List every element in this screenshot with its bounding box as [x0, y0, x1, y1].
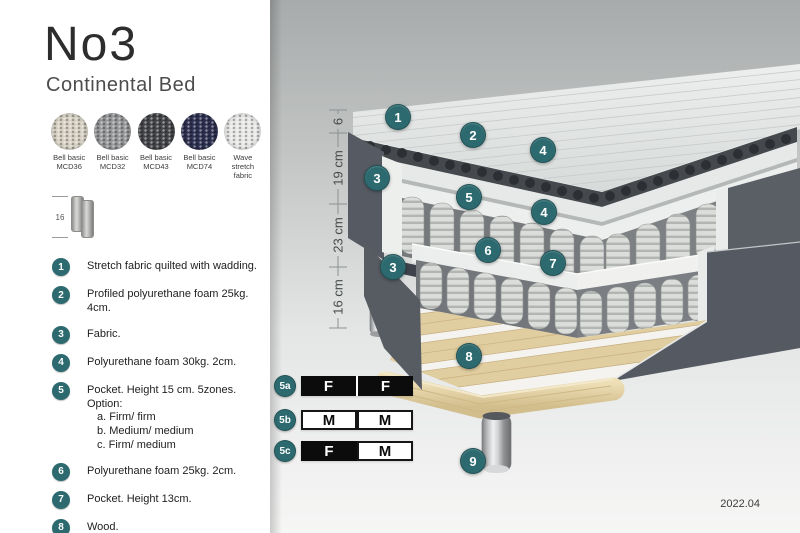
fabric-swatch-circle: [94, 113, 131, 150]
fabric-swatch-circle: [138, 113, 175, 150]
fabric-swatch-label: Bell basicMCD36: [53, 153, 85, 171]
legend-number-badge: 5: [52, 382, 70, 400]
legend-item: 5 Pocket. Height 15 cm. 5zones. Option: …: [52, 382, 270, 453]
legend-number-badge: 7: [52, 491, 70, 509]
callout-badge: 4: [530, 137, 556, 163]
firmness-bar: F M: [301, 441, 413, 461]
firmness-row-badge: 5a: [274, 375, 296, 397]
callout-badge: 3: [364, 165, 390, 191]
firmness-row: 5a F F: [274, 375, 413, 397]
info-panel: No3 Continental Bed Bell basicMCD36 Bell…: [0, 0, 270, 533]
fabric-swatch: Bell basicMCD32: [93, 113, 131, 180]
callout-badge: 6: [475, 237, 501, 263]
callout-badge: 8: [456, 343, 482, 369]
legend: 1 Stretch fabric quilted with wadding. 2…: [52, 258, 270, 533]
legend-text: Polyurethane foam 30kg. 2cm.: [87, 354, 236, 370]
version-label: 2022.04: [720, 498, 760, 510]
fabric-swatch-label: Bell basicMCD43: [140, 153, 172, 171]
firmness-row: 5c F M: [274, 440, 413, 462]
legend-number-badge: 1: [52, 258, 70, 276]
callout-badge: 1: [385, 104, 411, 130]
legend-number-badge: 2: [52, 286, 70, 304]
firmness-cell: F: [356, 376, 413, 396]
legend-item: 2 Profiled polyurethane foam 25kg. 4cm.: [52, 286, 270, 316]
dimension-label: 23 cm: [331, 217, 346, 252]
firmness-bar: F F: [301, 376, 413, 396]
firmness-cell: F: [301, 441, 357, 461]
firmness-row: 5b M M: [274, 409, 413, 431]
metal-leg-pictogram: [81, 200, 94, 238]
firmness-cell: M: [301, 410, 357, 430]
firmness-bar: M M: [301, 410, 413, 430]
firmness-cell: M: [357, 441, 413, 461]
upper-fabric-side: [348, 132, 384, 260]
callout-badge: 7: [540, 250, 566, 276]
legend-item: 6 Polyurethane foam 25kg. 2cm.: [52, 463, 270, 481]
legend-option: c. Firm/ medium: [97, 439, 270, 453]
firmness-cell: M: [357, 410, 413, 430]
legend-number-badge: 3: [52, 326, 70, 344]
product-title: No3: [44, 20, 270, 70]
fabric-swatch-circle: [51, 113, 88, 150]
fabric-swatch-label: Wavestretch fabric: [224, 153, 262, 180]
firmness-cell: F: [301, 376, 356, 396]
legend-text: Stretch fabric quilted with wadding.: [87, 258, 257, 274]
dimension-label: 6: [331, 118, 346, 125]
corner-metal-leg: [482, 412, 511, 473]
leg-height-dimension: 16: [52, 196, 68, 238]
legend-item: 3 Fabric.: [52, 326, 270, 344]
fabric-swatch: Wavestretch fabric: [224, 113, 262, 180]
fabric-swatch: Bell basicMCD36: [50, 113, 88, 180]
fabric-swatch-label: Bell basicMCD74: [183, 153, 215, 171]
legend-option: a. Firm/ firm: [97, 411, 270, 425]
legend-text: Polyurethane foam 25kg. 2cm.: [87, 463, 236, 479]
fabric-swatch: Bell basicMCD74: [180, 113, 218, 180]
legend-item: 4 Polyurethane foam 30kg. 2cm.: [52, 354, 270, 372]
callout-badge: 2: [460, 122, 486, 148]
legend-option: b. Medium/ medium: [97, 425, 270, 439]
fabric-swatch-label: Bell basicMCD32: [97, 153, 129, 171]
legend-number-badge: 4: [52, 354, 70, 372]
callout-badge: 4: [531, 199, 557, 225]
diagram-panel: 6 19 cm 23 cm 16 cm 1 2 4 3 5 4 6 7 3 8 …: [270, 0, 800, 533]
legend-number-badge: 8: [52, 519, 70, 533]
legend-item: 8 Wood.: [52, 519, 270, 533]
legend-item: 1 Stretch fabric quilted with wadding.: [52, 258, 270, 276]
fabric-swatch: Bell basicMCD43: [137, 113, 175, 180]
fabric-swatch-circle: [181, 113, 218, 150]
legend-number-badge: 6: [52, 463, 70, 481]
legend-text: Pocket. Height 15 cm. 5zones. Option: a.…: [87, 382, 270, 453]
legend-text: Profiled polyurethane foam 25kg. 4cm.: [87, 286, 270, 316]
product-subtitle: Continental Bed: [46, 74, 270, 97]
firmness-row-badge: 5c: [274, 440, 296, 462]
legend-text: Fabric.: [87, 326, 121, 342]
callout-badge: 5: [456, 184, 482, 210]
legend-item: 7 Pocket. Height 13cm.: [52, 491, 270, 509]
leg-height-figure: 16: [52, 196, 270, 244]
legend-text: Pocket. Height 13cm.: [87, 491, 192, 507]
dimension-labels: 6 19 cm 23 cm 16 cm: [331, 118, 346, 315]
callout-badge: 9: [460, 448, 486, 474]
callout-badge: 3: [380, 254, 406, 280]
product-sheet: No3 Continental Bed Bell basicMCD36 Bell…: [0, 0, 800, 533]
dimension-label: 19 cm: [331, 150, 346, 185]
legend-text: Wood.: [87, 519, 119, 533]
fabric-swatches: Bell basicMCD36 Bell basicMCD32 Bell bas…: [50, 113, 262, 180]
fabric-swatch-circle: [224, 113, 261, 150]
dimension-label: 16 cm: [331, 279, 346, 314]
firmness-row-badge: 5b: [274, 409, 296, 431]
